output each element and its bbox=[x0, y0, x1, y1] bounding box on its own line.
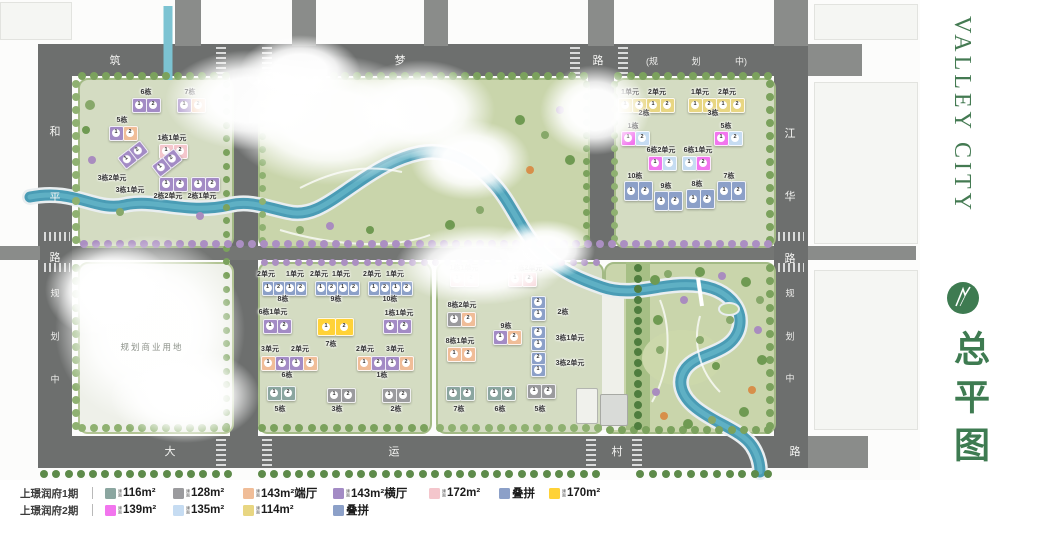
tree-icon bbox=[766, 93, 774, 101]
unit-number: 2 bbox=[328, 284, 336, 292]
building-section: 2 bbox=[461, 312, 476, 327]
road-label: 大 bbox=[165, 443, 176, 459]
legend-swatch bbox=[173, 505, 184, 516]
tree-icon bbox=[308, 424, 316, 432]
unit-number: 2 bbox=[194, 101, 202, 109]
tree-icon bbox=[488, 240, 496, 248]
unit-number: 1 bbox=[270, 389, 278, 397]
tree-icon bbox=[259, 159, 266, 166]
unit-number: 2 bbox=[504, 389, 512, 397]
building-label: 1单元 bbox=[691, 87, 709, 97]
unit-number: 2 bbox=[534, 328, 542, 336]
tree-icon bbox=[386, 259, 393, 266]
building-section: 1 bbox=[327, 388, 342, 403]
tree-icon bbox=[162, 424, 170, 432]
tree-icon bbox=[223, 231, 230, 238]
building-label: 2栋1单元 bbox=[188, 191, 217, 201]
unit-number: 1 bbox=[490, 389, 498, 397]
building-label: 2单元 bbox=[363, 269, 381, 279]
tree-icon bbox=[639, 72, 647, 80]
building-section: 2 bbox=[728, 131, 743, 146]
unit-number: 1 bbox=[717, 134, 725, 142]
unit-number: 2 bbox=[344, 391, 352, 399]
building-section: 2 bbox=[401, 281, 413, 296]
tree-icon bbox=[608, 240, 616, 248]
legend-item: 建面135m² bbox=[173, 504, 243, 516]
tree-icon bbox=[164, 240, 172, 248]
tree-icon bbox=[572, 240, 580, 248]
tree-icon bbox=[272, 259, 279, 266]
existing-building bbox=[576, 388, 598, 424]
building-section: 2 bbox=[461, 347, 476, 362]
unit-number: 2 bbox=[464, 350, 472, 358]
building-section: 2 bbox=[396, 388, 411, 403]
legend-item: 叠拼 bbox=[499, 485, 549, 501]
legend-unit-prefix: 建面 bbox=[346, 489, 350, 497]
building-section: 2 bbox=[700, 189, 715, 209]
building-section: 1 bbox=[717, 181, 732, 201]
tree-icon bbox=[728, 426, 736, 434]
tree-icon bbox=[114, 424, 122, 432]
tree-icon bbox=[584, 240, 592, 248]
unit-number: 2 bbox=[284, 389, 292, 397]
tree-icon bbox=[296, 226, 304, 234]
unit-number: 1 bbox=[627, 187, 635, 195]
tree-icon bbox=[72, 119, 80, 127]
tree-icon bbox=[162, 72, 170, 80]
tree-icon bbox=[306, 72, 314, 80]
building-section: 1 bbox=[447, 347, 462, 362]
tree-icon bbox=[260, 240, 268, 248]
tree-icon bbox=[594, 424, 602, 432]
building-label: 5栋 bbox=[275, 404, 286, 414]
tree-icon bbox=[259, 120, 266, 127]
tree-icon bbox=[306, 259, 313, 266]
tree-icon bbox=[344, 240, 352, 248]
building-section: 2 bbox=[123, 126, 138, 141]
building-label: 6栋1单元 bbox=[684, 145, 713, 155]
tree-icon bbox=[116, 240, 124, 248]
tree-icon bbox=[138, 72, 146, 80]
tree-icon bbox=[174, 424, 182, 432]
tree-icon bbox=[583, 119, 590, 126]
tree-icon bbox=[611, 119, 618, 126]
tree-icon bbox=[766, 145, 774, 153]
tree-icon bbox=[223, 135, 230, 142]
road-label: 华 bbox=[785, 188, 796, 204]
unit-number: 1 bbox=[264, 284, 272, 292]
building-label: 1栋 bbox=[628, 121, 639, 131]
tree-icon bbox=[186, 424, 194, 432]
legend-area-value: 128m² bbox=[191, 487, 224, 499]
tree-icon bbox=[394, 470, 402, 478]
tree-icon bbox=[473, 72, 481, 80]
tree-icon bbox=[261, 259, 268, 266]
unit-number: 1 bbox=[135, 101, 143, 109]
tree-icon bbox=[634, 296, 642, 304]
tree-icon bbox=[294, 72, 302, 80]
legend-area-value: 143m²横厅 bbox=[351, 485, 407, 501]
road-label: 中 bbox=[50, 373, 59, 386]
unit-number: 1 bbox=[453, 275, 461, 283]
unit-number: 2 bbox=[402, 359, 410, 367]
tree-icon bbox=[175, 470, 183, 478]
brand-name-vertical: VALLEY CITY bbox=[948, 16, 975, 278]
tree-icon bbox=[223, 190, 230, 197]
tree-icon bbox=[726, 470, 734, 478]
building-label: 1栋1单元 bbox=[385, 308, 414, 318]
building-label: 2栋 bbox=[639, 108, 650, 118]
building-label: 1栋1单元 bbox=[158, 133, 187, 143]
building-section: 1 bbox=[382, 388, 397, 403]
unit-number: 1 bbox=[385, 391, 393, 399]
tree-icon bbox=[72, 396, 80, 404]
legend-area-value: 叠拼 bbox=[346, 502, 369, 518]
building-section: 1 bbox=[132, 98, 147, 113]
building: 12 bbox=[527, 384, 555, 398]
tree-icon bbox=[581, 259, 588, 266]
building: 12 bbox=[382, 388, 410, 402]
building-section: 2 bbox=[275, 356, 290, 371]
tree-icon bbox=[556, 106, 564, 114]
building-section: 1 bbox=[450, 272, 465, 287]
tree-icon bbox=[40, 470, 48, 478]
tree-icon bbox=[258, 72, 266, 80]
unit-number: 1 bbox=[292, 359, 300, 367]
building-label: 3栋 bbox=[332, 404, 343, 414]
tree-icon bbox=[88, 156, 96, 164]
tree-icon bbox=[210, 424, 218, 432]
road-label: 中 bbox=[785, 372, 794, 385]
tree-icon bbox=[258, 470, 266, 478]
building-section: 1 bbox=[317, 318, 336, 336]
tree-icon bbox=[224, 470, 232, 478]
tree-icon bbox=[72, 171, 80, 179]
building: 1212 bbox=[315, 281, 359, 295]
building-section: 1 bbox=[289, 356, 304, 371]
road-label: 筑 bbox=[110, 52, 121, 68]
building-section: 1 bbox=[446, 386, 461, 401]
tree-icon bbox=[655, 426, 663, 434]
tree-icon bbox=[611, 93, 618, 100]
building-section: 2 bbox=[173, 177, 188, 192]
building: 12 bbox=[267, 386, 295, 400]
building-section: 2 bbox=[531, 326, 546, 339]
tree-icon bbox=[497, 72, 505, 80]
tree-icon bbox=[223, 204, 230, 211]
building-label: 1单元 bbox=[332, 269, 350, 279]
tree-icon bbox=[766, 210, 774, 218]
tree-icon bbox=[72, 197, 80, 205]
tree-icon bbox=[515, 115, 525, 125]
tree-icon bbox=[611, 209, 618, 216]
tree-icon bbox=[259, 81, 266, 88]
legend-unit-prefix: 建面 bbox=[562, 489, 566, 497]
tree-icon bbox=[198, 72, 206, 80]
tree-icon bbox=[78, 424, 86, 432]
building-section: 2 bbox=[522, 272, 537, 287]
unit-number: 1 bbox=[180, 101, 188, 109]
unit-number: 1 bbox=[112, 129, 120, 137]
road-label: 和 bbox=[50, 123, 61, 139]
unit-number: 1 bbox=[689, 195, 697, 203]
building-label: 3栋2单元 bbox=[98, 173, 127, 183]
building: 12 bbox=[487, 386, 515, 400]
tree-icon bbox=[662, 470, 670, 478]
unit-number: 1 bbox=[386, 322, 394, 330]
legend-swatch bbox=[105, 505, 116, 516]
building-section: 1 bbox=[383, 319, 398, 334]
building-label: 3栋1单元 bbox=[556, 333, 585, 343]
tree-icon bbox=[382, 470, 390, 478]
building-section: 2 bbox=[638, 181, 653, 201]
unit-number: 2 bbox=[126, 129, 134, 137]
road-label: 运 bbox=[389, 443, 400, 459]
legend-swatch bbox=[549, 488, 560, 499]
building-section: 1 bbox=[315, 281, 327, 296]
building: 12 bbox=[624, 181, 652, 200]
building-section: 2 bbox=[460, 386, 475, 401]
legend-phase-label: 上璟润府2期 bbox=[20, 503, 90, 518]
unit-number: 1 bbox=[511, 275, 519, 283]
building: 12 bbox=[132, 98, 160, 112]
unit-number: 1 bbox=[450, 350, 458, 358]
building-label: 6栋 bbox=[141, 87, 152, 97]
tree-icon bbox=[536, 240, 544, 248]
building-section: 1 bbox=[368, 281, 380, 296]
unit-number: 2 bbox=[399, 391, 407, 399]
tree-icon bbox=[259, 211, 266, 218]
tree-icon bbox=[636, 470, 644, 478]
tree-icon bbox=[650, 275, 660, 285]
tree-icon bbox=[570, 424, 578, 432]
tree-icon bbox=[283, 424, 291, 432]
unit-number: 2 bbox=[340, 323, 348, 331]
tree-icon bbox=[764, 240, 772, 248]
building-section: 2 bbox=[696, 156, 711, 171]
building-label: 9栋 bbox=[661, 181, 672, 191]
tree-icon bbox=[163, 470, 171, 478]
tree-icon bbox=[713, 470, 721, 478]
tree-icon bbox=[259, 185, 266, 192]
unit-number: 2 bbox=[403, 284, 411, 292]
building-section: 1 bbox=[648, 156, 663, 171]
building-label: 7栋 bbox=[185, 87, 196, 97]
tree-icon bbox=[543, 470, 551, 478]
building: 12 bbox=[714, 131, 742, 145]
tree-icon bbox=[116, 208, 124, 216]
tree-icon bbox=[449, 72, 457, 80]
unit-number: 1 bbox=[530, 387, 538, 395]
unit-number: 2 bbox=[132, 145, 143, 156]
tree-icon bbox=[72, 317, 80, 325]
tree-icon bbox=[739, 407, 749, 417]
tree-icon bbox=[102, 72, 110, 80]
building-label: 7栋 bbox=[326, 339, 337, 349]
tree-icon bbox=[196, 212, 204, 220]
building-section: 2 bbox=[507, 330, 522, 345]
tree-icon bbox=[150, 424, 158, 432]
tree-icon bbox=[766, 264, 774, 272]
tree-icon bbox=[222, 424, 230, 432]
legend-item: 建面114m² bbox=[243, 504, 333, 516]
building: 12 bbox=[263, 319, 291, 333]
tree-icon bbox=[667, 426, 675, 434]
tree-icon bbox=[592, 470, 600, 478]
building-label: 5栋 bbox=[117, 115, 128, 125]
legend-item: 建面170m² bbox=[549, 487, 609, 499]
tree-icon bbox=[606, 426, 614, 434]
building-label: 1单元 bbox=[621, 87, 639, 97]
building: 12 bbox=[654, 191, 682, 210]
tree-icon bbox=[526, 166, 534, 174]
building-section: 2 bbox=[303, 356, 318, 371]
tree-icon bbox=[428, 240, 436, 248]
tree-icon bbox=[223, 176, 230, 183]
legend-area-value: 170m² bbox=[567, 487, 600, 499]
tree-icon bbox=[259, 172, 266, 179]
tree-icon bbox=[766, 409, 774, 417]
legend-item: 建面116m² bbox=[105, 487, 173, 499]
legend-area-value: 116m² bbox=[123, 487, 156, 499]
tree-icon bbox=[223, 409, 230, 416]
tree-icon bbox=[712, 362, 720, 370]
tree-icon bbox=[493, 470, 501, 478]
tree-icon bbox=[383, 424, 391, 432]
building-section: 1 bbox=[357, 356, 372, 371]
tree-icon bbox=[380, 240, 388, 248]
tree-icon bbox=[741, 277, 751, 287]
tree-icon bbox=[223, 286, 230, 293]
tree-icon bbox=[72, 80, 80, 88]
unit-number: 2 bbox=[641, 187, 649, 195]
tree-icon bbox=[660, 412, 668, 420]
tree-icon bbox=[72, 343, 80, 351]
tree-icon bbox=[223, 395, 230, 402]
tree-icon bbox=[683, 419, 693, 429]
tree-icon bbox=[485, 72, 493, 80]
tree-icon bbox=[611, 196, 618, 203]
legend-swatch bbox=[429, 488, 440, 499]
building-section: 2 bbox=[348, 281, 360, 296]
tree-icon bbox=[318, 72, 326, 80]
tree-icon bbox=[283, 470, 291, 478]
tree-icon bbox=[236, 240, 244, 248]
unit-number: 1 bbox=[649, 101, 657, 109]
tree-icon bbox=[140, 240, 148, 248]
tree-icon bbox=[329, 259, 336, 266]
tree-icon bbox=[223, 108, 230, 115]
tree-icon bbox=[72, 210, 80, 218]
unit-number: 2 bbox=[176, 180, 184, 188]
tree-icon bbox=[764, 470, 772, 478]
building-section: 2 bbox=[668, 191, 683, 211]
building-section: 1 bbox=[508, 272, 523, 287]
unit-number: 2 bbox=[534, 354, 542, 362]
unit-number: 1 bbox=[370, 284, 378, 292]
unit-number: 1 bbox=[155, 162, 166, 173]
unit-number: 1 bbox=[194, 180, 202, 188]
building-section: 2 bbox=[541, 384, 556, 399]
tree-icon bbox=[72, 106, 80, 114]
unit-number: 1 bbox=[651, 159, 659, 167]
tree-icon bbox=[766, 119, 774, 127]
tree-icon bbox=[766, 383, 774, 391]
building-section: 1 bbox=[177, 98, 192, 113]
tree-icon bbox=[518, 470, 526, 478]
tree-icon bbox=[558, 259, 565, 266]
tree-icon bbox=[708, 416, 716, 424]
tree-icon bbox=[72, 158, 80, 166]
tree-icon bbox=[345, 470, 353, 478]
tree-icon bbox=[668, 240, 676, 248]
building-label: 2单元 bbox=[310, 269, 328, 279]
tree-icon bbox=[85, 100, 95, 110]
tree-icon bbox=[72, 93, 80, 101]
unit-number: 2 bbox=[464, 315, 472, 323]
tree-icon bbox=[432, 259, 439, 266]
legend-swatch bbox=[243, 505, 254, 516]
unit-number: 1 bbox=[286, 284, 294, 292]
building-section: 2 bbox=[341, 388, 356, 403]
tree-icon bbox=[358, 424, 366, 432]
building-section: 1 bbox=[262, 281, 274, 296]
tree-icon bbox=[583, 183, 590, 190]
building-label: 7栋 bbox=[724, 171, 735, 181]
unit-number: 1 bbox=[392, 284, 400, 292]
legend-unit-prefix: 建面 bbox=[256, 506, 260, 514]
tree-icon bbox=[150, 72, 158, 80]
tree-icon bbox=[90, 72, 98, 80]
tree-icon bbox=[223, 327, 230, 334]
building-section: 2 bbox=[146, 98, 161, 113]
tree-icon bbox=[404, 240, 412, 248]
tree-icon bbox=[461, 72, 469, 80]
tree-icon bbox=[409, 259, 416, 266]
legend-area-value: 172m² bbox=[447, 487, 480, 499]
tree-icon bbox=[114, 72, 122, 80]
building: 1212 bbox=[368, 281, 412, 295]
tree-icon bbox=[652, 72, 660, 80]
tree-icon bbox=[176, 240, 184, 248]
tree-icon bbox=[398, 259, 405, 266]
tree-icon bbox=[223, 81, 230, 88]
tree-icon bbox=[634, 317, 642, 325]
building-section: 2 bbox=[501, 386, 516, 401]
building-section: 1 bbox=[267, 386, 282, 401]
tree-icon bbox=[649, 470, 657, 478]
building-section: 2 bbox=[635, 131, 650, 146]
building-section: 1 bbox=[527, 384, 542, 399]
legend-area-value: 114m² bbox=[261, 504, 294, 516]
building-label: 9栋 bbox=[331, 294, 342, 304]
legend-item: 建面143m²横厅 bbox=[333, 485, 429, 501]
tree-icon bbox=[634, 380, 642, 388]
tree-icon bbox=[664, 72, 672, 80]
tree-icon bbox=[114, 470, 122, 478]
building-section: 1 bbox=[385, 356, 400, 371]
legend-unit-prefix: 建面 bbox=[442, 489, 446, 497]
tree-icon bbox=[680, 296, 688, 304]
tree-icon bbox=[700, 470, 708, 478]
unit-number: 2 bbox=[638, 134, 646, 142]
building: 12 bbox=[621, 131, 649, 145]
tree-icon bbox=[634, 359, 642, 367]
building: 12 bbox=[327, 388, 355, 402]
tree-icon bbox=[452, 240, 460, 248]
tree-icon bbox=[583, 222, 590, 229]
tree-icon bbox=[583, 196, 590, 203]
